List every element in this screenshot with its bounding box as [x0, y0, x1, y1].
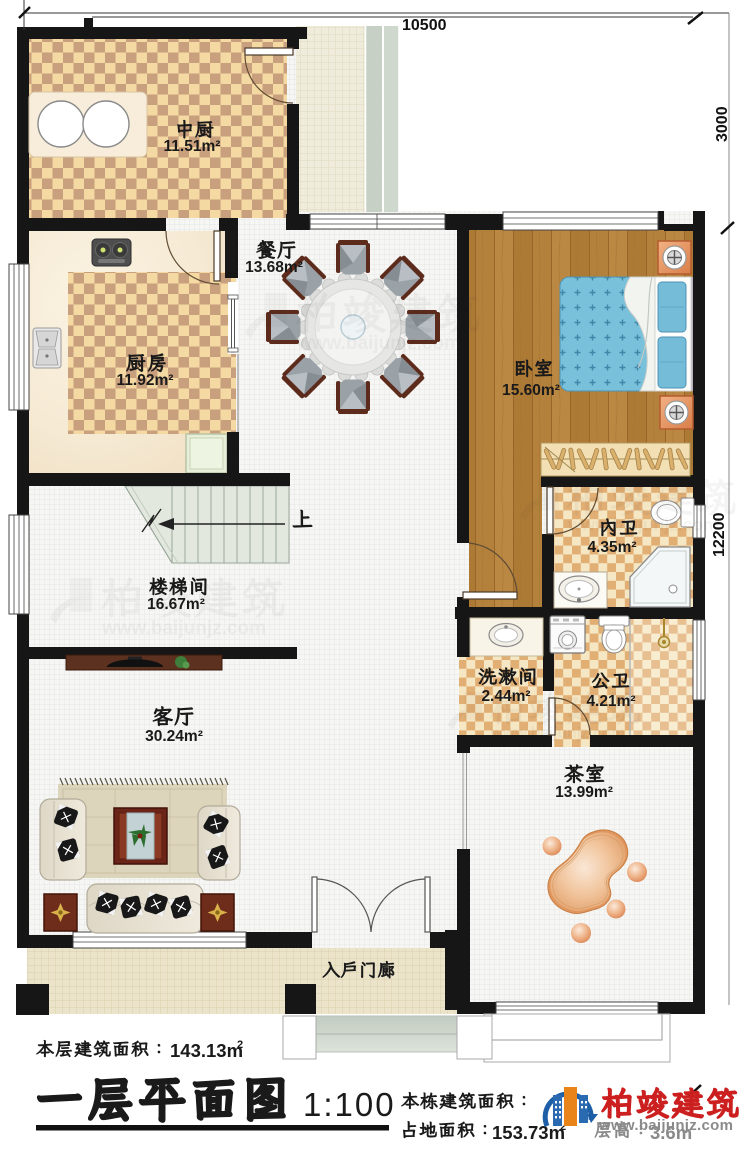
- svg-text:16.67m²: 16.67m²: [147, 596, 205, 613]
- svg-text:www.baijunjz.com: www.baijunjz.com: [296, 333, 461, 354]
- svg-text:www.baijunjz.com: www.baijunjz.com: [490, 725, 625, 742]
- svg-text:30.24m²: 30.24m²: [145, 728, 203, 745]
- svg-text:12200: 12200: [711, 512, 728, 557]
- svg-text:4.35m²: 4.35m²: [587, 539, 636, 556]
- svg-text:2: 2: [237, 1039, 243, 1051]
- svg-text:4.21m²: 4.21m²: [586, 693, 635, 710]
- svg-text:www.baijunjz.com: www.baijunjz.com: [567, 514, 719, 534]
- svg-text:11.51m²: 11.51m²: [164, 138, 221, 155]
- svg-text:13.99m²: 13.99m²: [555, 784, 613, 801]
- svg-text:www.baijunjz.com: www.baijunjz.com: [101, 618, 266, 639]
- svg-text:www.baijunjz.com: www.baijunjz.com: [598, 1117, 733, 1134]
- svg-text:3000: 3000: [714, 106, 731, 142]
- svg-text:1:100: 1:100: [303, 1086, 396, 1123]
- svg-text:2.44m²: 2.44m²: [481, 688, 530, 705]
- svg-text:13.68m²: 13.68m²: [245, 259, 303, 276]
- svg-text:15.60m²: 15.60m²: [502, 382, 560, 399]
- svg-text:11.92m²: 11.92m²: [117, 372, 174, 389]
- svg-text:143.13m: 143.13m: [170, 1040, 243, 1061]
- svg-text:10500: 10500: [402, 17, 447, 34]
